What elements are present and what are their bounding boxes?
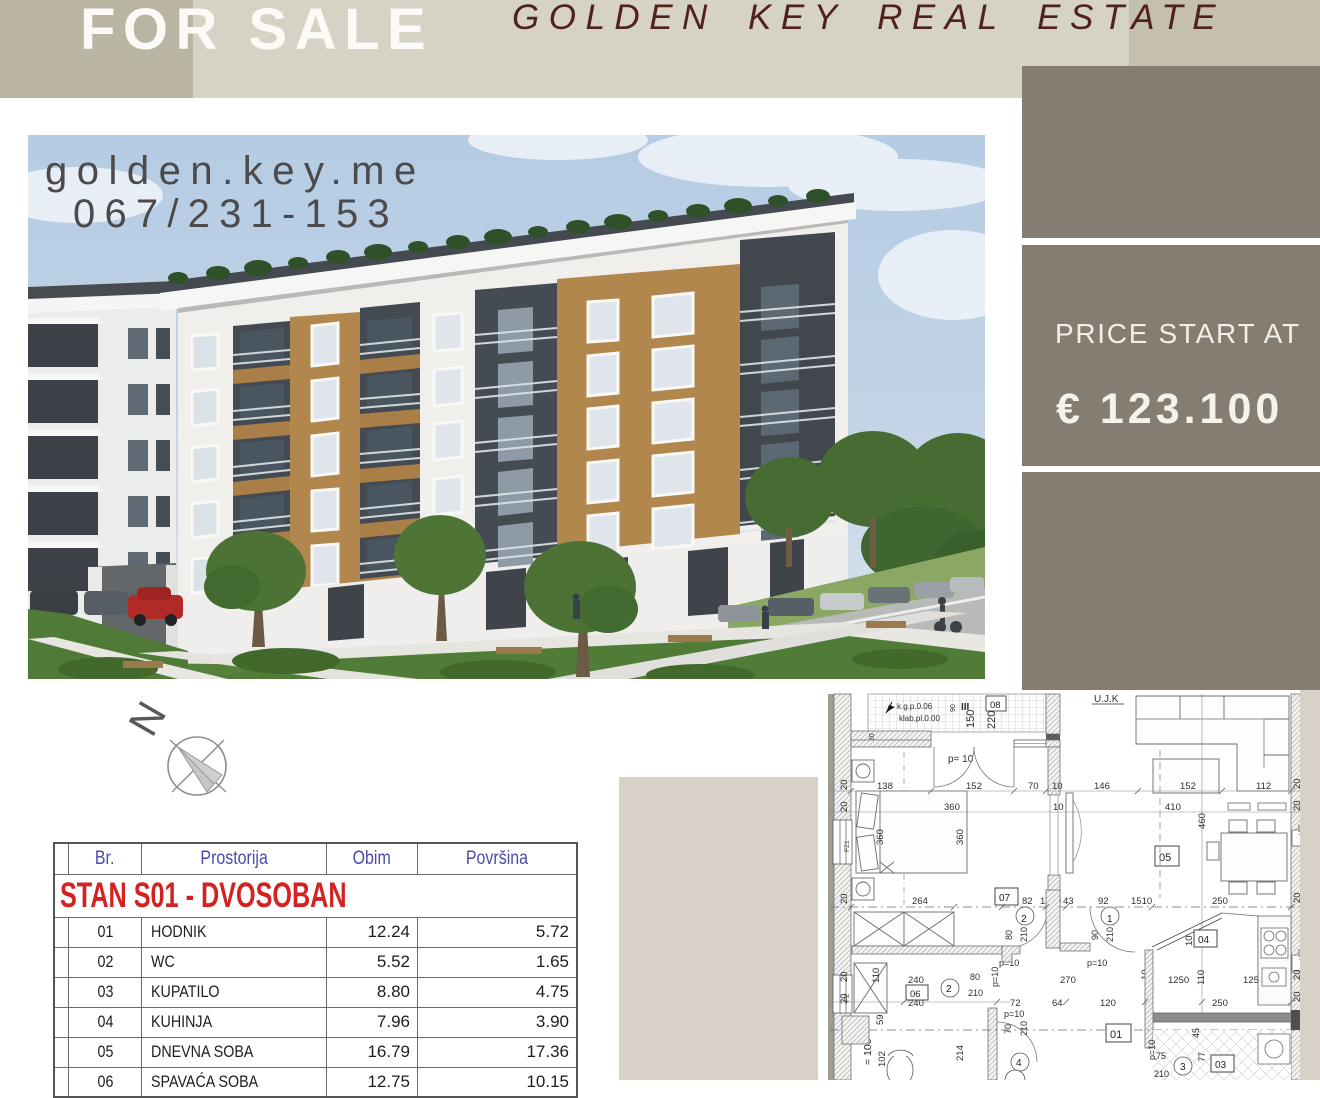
svg-text:110: 110 (1196, 970, 1207, 985)
svg-text:UZ5: UZ5 (1299, 823, 1300, 835)
svg-text:250: 250 (1212, 896, 1228, 907)
svg-text:p=10: p=10 (1004, 1009, 1024, 1019)
svg-text:75: 75 (1156, 1051, 1166, 1061)
svg-text:270: 270 (1060, 975, 1076, 986)
svg-text:p=10: p=10 (1087, 958, 1107, 968)
svg-text:360: 360 (944, 802, 960, 813)
svg-text:64: 64 (1052, 998, 1063, 1009)
svg-text:152: 152 (966, 781, 982, 792)
svg-text:43: 43 (1063, 896, 1074, 907)
svg-text:72: 72 (1010, 998, 1021, 1009)
svg-text:p=10: p=10 (990, 967, 1000, 987)
svg-text:1: 1 (1107, 914, 1113, 925)
svg-text:210: 210 (1154, 1069, 1169, 1079)
svg-text:1250: 1250 (1168, 975, 1189, 986)
svg-text:1510: 1510 (1131, 896, 1152, 907)
svg-text:20: 20 (1292, 969, 1300, 980)
svg-text:k.g.p.0.06: k.g.p.0.06 (897, 702, 933, 711)
svg-text:20: 20 (839, 893, 850, 904)
svg-text:138: 138 (877, 781, 893, 792)
svg-text:125: 125 (1243, 975, 1259, 986)
svg-text:70: 70 (1003, 1024, 1013, 1034)
svg-text:10: 10 (1053, 802, 1064, 813)
svg-text:90: 90 (950, 704, 957, 712)
svg-text:20: 20 (1292, 778, 1300, 789)
svg-text:112: 112 (1256, 781, 1271, 792)
svg-text:10: 10 (1184, 935, 1195, 946)
svg-text:20: 20 (1292, 800, 1300, 811)
svg-text:10: 10 (1052, 781, 1063, 792)
svg-text:07: 07 (999, 893, 1011, 904)
svg-text:80: 80 (1004, 930, 1014, 940)
svg-text:59: 59 (875, 1014, 886, 1025)
svg-text:360: 360 (955, 829, 966, 845)
svg-text:2: 2 (1021, 914, 1027, 925)
svg-text:UZ2: UZ2 (1299, 948, 1300, 960)
svg-text:20: 20 (1292, 892, 1300, 903)
svg-text:410: 410 (1165, 802, 1181, 813)
svg-text:82: 82 (1022, 896, 1033, 907)
svg-text:3: 3 (1180, 1062, 1186, 1073)
svg-text:45: 45 (1191, 1028, 1201, 1038)
svg-text:102: 102 (877, 1051, 888, 1067)
svg-text:N: N (119, 694, 175, 744)
svg-text:110: 110 (871, 968, 882, 983)
svg-text:150: 150 (965, 710, 977, 728)
svg-text:U.J.K: U.J.K (1094, 694, 1119, 705)
svg-text:80: 80 (970, 972, 980, 982)
svg-text:FZ1: FZ1 (844, 840, 851, 852)
svg-text:20: 20 (839, 779, 850, 790)
svg-text:01: 01 (1110, 1029, 1122, 1041)
svg-text:210: 210 (968, 988, 983, 998)
svg-text:214: 214 (955, 1045, 966, 1061)
svg-text:4: 4 (1016, 1058, 1022, 1069)
svg-text:golden.key.me: golden.key.me (45, 149, 426, 193)
svg-text:92: 92 (1098, 896, 1109, 907)
svg-text:90: 90 (1090, 930, 1100, 940)
svg-text:03: 03 (1215, 1060, 1227, 1071)
svg-text:p= 10: p= 10 (948, 754, 974, 765)
svg-text:20: 20 (839, 993, 850, 1004)
svg-text:210: 210 (1019, 1021, 1029, 1036)
svg-text:146: 146 (1094, 781, 1110, 792)
svg-text:klab.pl.0.00: klab.pl.0.00 (899, 714, 940, 723)
svg-text:210: 210 (1019, 927, 1029, 942)
svg-text:240: 240 (908, 975, 924, 986)
svg-text:460: 460 (1197, 813, 1208, 829)
svg-text:20: 20 (839, 801, 850, 812)
svg-text:70: 70 (1028, 781, 1039, 792)
svg-text:2: 2 (946, 984, 952, 995)
svg-text:20: 20 (1292, 991, 1300, 1002)
svg-text:220: 220 (986, 711, 998, 729)
svg-text:05: 05 (1159, 852, 1171, 864)
svg-text:264: 264 (912, 896, 928, 907)
svg-text:77: 77 (1197, 1052, 1207, 1062)
svg-text:360: 360 (875, 829, 886, 845)
svg-text:04: 04 (1198, 935, 1210, 946)
svg-text:08: 08 (990, 700, 1001, 711)
svg-text:152: 152 (1180, 781, 1196, 792)
svg-text:06: 06 (910, 989, 921, 1000)
svg-text:250: 250 (1212, 998, 1228, 1009)
svg-text:210: 210 (1105, 927, 1115, 942)
svg-text:20: 20 (839, 971, 850, 982)
svg-text:067/231-153: 067/231-153 (73, 192, 399, 236)
svg-text:120: 120 (1100, 998, 1116, 1009)
